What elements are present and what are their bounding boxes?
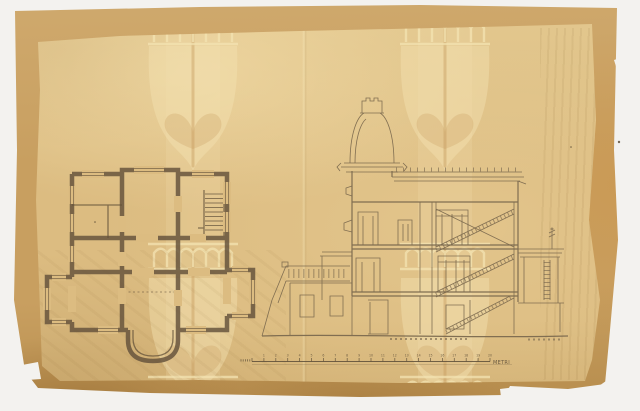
ink-speck: [570, 146, 572, 148]
scale-unit-label: METRI: [493, 360, 510, 366]
ink-speck: [94, 221, 96, 223]
svg-text:2: 2: [275, 354, 277, 358]
svg-text:17: 17: [452, 354, 456, 358]
svg-text:4: 4: [299, 354, 301, 358]
svg-text:1: 1: [263, 354, 265, 358]
svg-text:15: 15: [428, 354, 432, 358]
scale-bar: 1234567891011121314151617181920 METRI: [241, 354, 512, 367]
svg-text:19: 19: [476, 354, 480, 358]
paper-damage: [22, 58, 620, 397]
svg-text:3: 3: [287, 354, 289, 358]
svg-text:16: 16: [440, 354, 444, 358]
cross-section: [262, 98, 568, 340]
svg-text:7: 7: [334, 354, 336, 358]
scanned-drawing-photo: 1234567891011121314151617181920 METRI: [0, 0, 640, 411]
svg-text:18: 18: [464, 354, 468, 358]
floor-plan: [43, 166, 257, 361]
svg-text:5: 5: [310, 354, 312, 358]
svg-text:12: 12: [393, 354, 397, 358]
plan-stair: [205, 194, 223, 230]
svg-text:20: 20: [488, 354, 492, 358]
svg-text:14: 14: [417, 354, 421, 358]
drawing-layer: 1234567891011121314151617181920 METRI: [0, 0, 640, 411]
svg-text:11: 11: [381, 354, 385, 358]
svg-text:9: 9: [358, 354, 360, 358]
svg-text:13: 13: [405, 354, 409, 358]
svg-text:10: 10: [369, 354, 373, 358]
svg-text:6: 6: [322, 354, 324, 358]
ink-speck: [618, 141, 620, 143]
svg-text:8: 8: [346, 354, 348, 358]
scale-tick-group: 1234567891011121314151617181920: [241, 354, 492, 362]
